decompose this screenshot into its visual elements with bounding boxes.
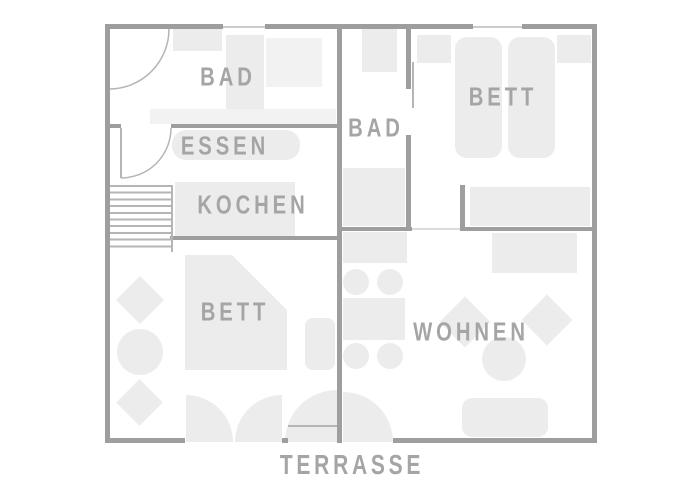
armchair-diamond-2 <box>522 295 573 346</box>
sideboard <box>492 233 577 273</box>
window-glass-line <box>473 26 522 28</box>
plant-diamond-2 <box>116 379 163 426</box>
outer-wall-right <box>592 24 597 443</box>
wardrobe <box>470 187 590 226</box>
wall-stub-bedroom-right <box>460 185 465 227</box>
bathtub-right <box>343 168 405 226</box>
room-label-wohnen: WOHNEN <box>413 317 529 348</box>
nightstand-a <box>417 35 451 63</box>
window-glass-line <box>223 26 265 28</box>
room-label-bad-left: BAD <box>200 62 256 93</box>
bathroom-fixture <box>173 29 222 51</box>
plant-diamond-1 <box>116 276 164 324</box>
french-door-fan-right <box>235 395 282 442</box>
room-label-bad-right: BAD <box>348 113 404 144</box>
side-table-round <box>117 329 163 375</box>
outer-wall-bottom-jamb <box>282 438 288 443</box>
shower-area <box>266 38 322 87</box>
terrasse-label: TERRASSE <box>280 449 424 481</box>
wall-bath-right-upper <box>406 29 411 89</box>
chair-4 <box>377 343 403 369</box>
outer-wall-top-3 <box>522 24 597 29</box>
window-bedroom-right <box>473 24 522 29</box>
wall-bath-dining-1 <box>105 124 121 128</box>
chair-3 <box>343 343 369 369</box>
door-leaf-terrace-bedroom <box>288 425 337 427</box>
wall-hall-living-1 <box>342 227 412 231</box>
wall-kitchen-bedroom <box>170 236 337 240</box>
outer-wall-bottom-2 <box>393 438 592 443</box>
nightstand-left-bedroom <box>305 318 335 370</box>
door-arc-bathroom-left <box>109 29 169 89</box>
divider-wall-center <box>337 24 342 443</box>
door-leaf-dining <box>120 128 122 178</box>
floor-plan: BAD ESSEN KOCHEN BETT BAD BETT WOHNEN TE… <box>0 0 700 500</box>
room-label-bett-left: BETT <box>201 297 270 328</box>
outer-wall-bottom-1 <box>105 438 185 443</box>
chair-1 <box>343 269 369 295</box>
door-threshold-living <box>412 228 460 230</box>
washbasin-right <box>362 29 397 72</box>
terrace-door-fan-living <box>343 392 393 442</box>
window-bathroom-left <box>223 24 265 29</box>
sofa <box>462 398 548 437</box>
terrace-door-fan-bedroom <box>285 390 337 442</box>
room-label-bett-right: BETT <box>469 82 538 113</box>
nightstand-b <box>557 35 591 63</box>
wall-hall-living-2 <box>460 227 592 231</box>
shelf <box>343 232 407 263</box>
door-arc-dining <box>121 128 171 178</box>
staircase <box>110 185 173 252</box>
vanity-counter <box>150 109 336 124</box>
wall-bath-right-lower <box>406 135 411 227</box>
wall-bath-dining-2 <box>171 124 337 128</box>
outer-wall-top-2 <box>265 24 473 29</box>
room-label-essen: ESSEN <box>181 131 269 162</box>
chair-2 <box>377 269 403 295</box>
door-leaf-bathroom-right <box>412 62 414 108</box>
room-label-kochen: KOCHEN <box>197 190 308 221</box>
french-door-fan-left <box>186 395 233 442</box>
dining-table-living <box>343 298 405 340</box>
outer-wall-top-1 <box>105 24 223 29</box>
